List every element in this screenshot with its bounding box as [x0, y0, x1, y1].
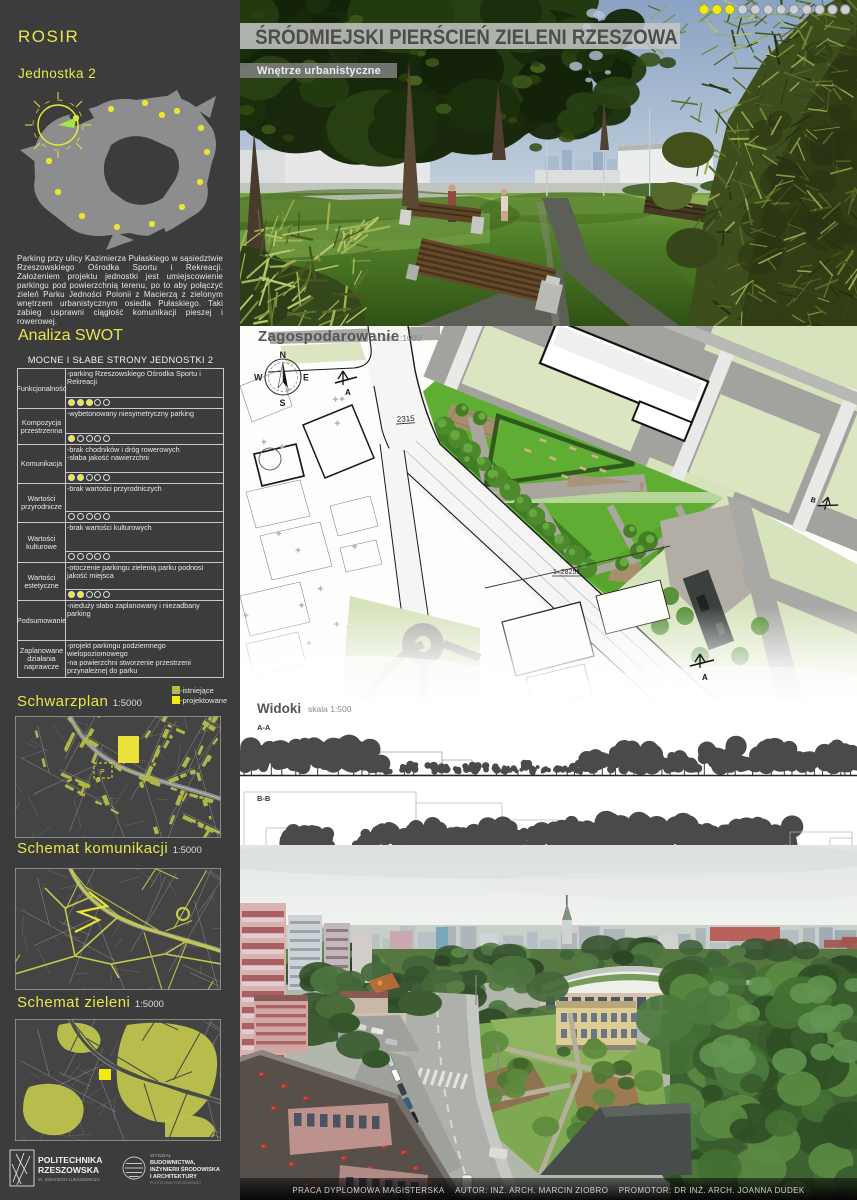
svg-text:N: N — [280, 350, 287, 360]
svg-text:I ARCHITEKTURY: I ARCHITEKTURY — [150, 1174, 197, 1180]
svg-text:RZESZOWSKA: RZESZOWSKA — [38, 1165, 99, 1175]
svg-text:BUDOWNICTWA,: BUDOWNICTWA, — [150, 1160, 196, 1166]
svg-text:E: E — [303, 373, 309, 383]
svg-text:A: A — [702, 673, 708, 682]
svg-text:POLITECHNIKI RZESZOWSKIEJ: POLITECHNIKI RZESZOWSKIEJ — [150, 1181, 201, 1185]
svg-text:Widoki: Widoki — [257, 701, 301, 716]
svg-text:INŻYNIERII ŚRODOWISKA: INŻYNIERII ŚRODOWISKA — [150, 1166, 220, 1173]
svg-text:A-A: A-A — [257, 723, 271, 732]
svg-text:2315: 2315 — [397, 414, 416, 424]
svg-text:POLITECHNIKA: POLITECHNIKA — [38, 1155, 102, 1165]
svg-text:S: S — [280, 398, 286, 408]
svg-text:WYDZIAŁ: WYDZIAŁ — [150, 1153, 172, 1159]
svg-text:W: W — [254, 373, 263, 383]
svg-text:skala 1:1000: skala 1:1000 — [373, 333, 421, 343]
svg-text:P: P — [100, 769, 105, 776]
svg-text:im. IGNACEGO ŁUKASIEWICZA: im. IGNACEGO ŁUKASIEWICZA — [38, 1177, 100, 1182]
svg-text:B-B: B-B — [257, 794, 271, 803]
svg-text:A: A — [345, 388, 351, 397]
svg-text:1–28251: 1–28251 — [553, 569, 580, 576]
svg-text:skala 1:500: skala 1:500 — [308, 704, 352, 714]
